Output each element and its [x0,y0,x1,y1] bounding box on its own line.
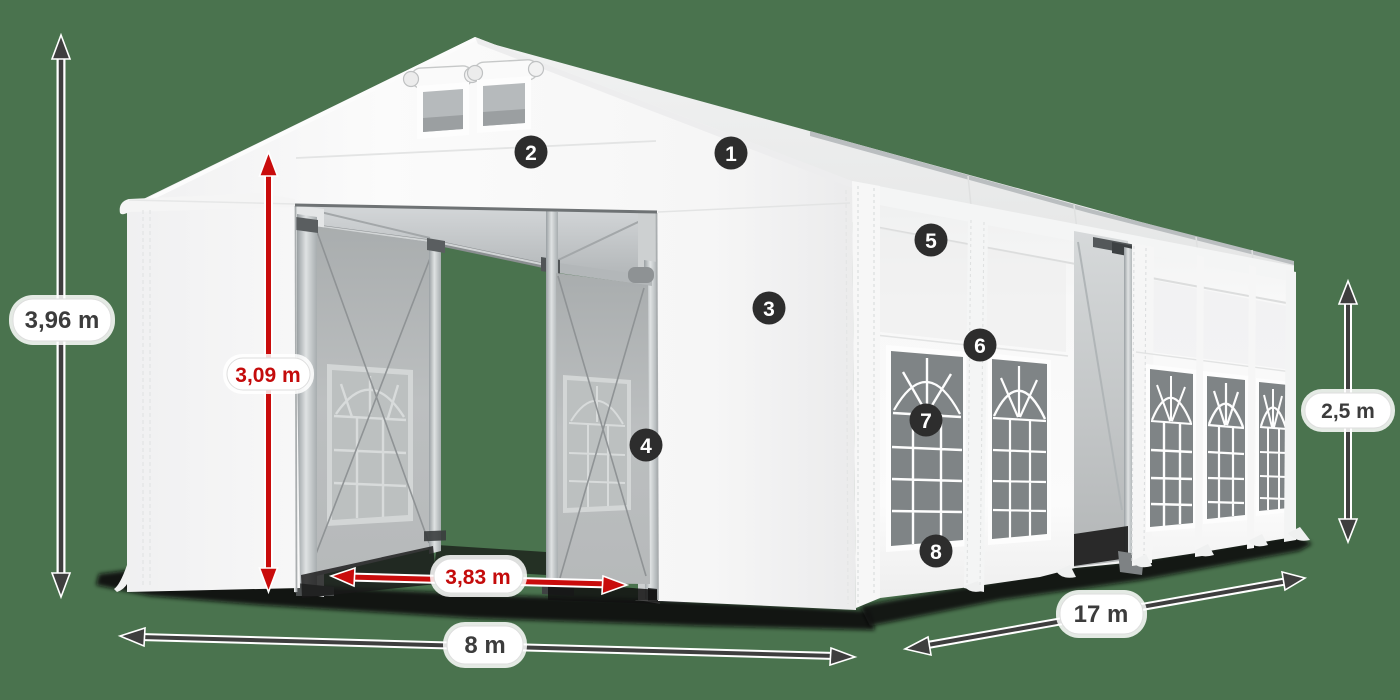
svg-text:2,5 m: 2,5 m [1321,400,1375,423]
svg-text:3,83 m: 3,83 m [445,566,510,589]
svg-text:3: 3 [763,298,775,321]
svg-text:7: 7 [920,410,932,433]
svg-text:3,09 m: 3,09 m [235,364,300,387]
svg-text:1: 1 [725,143,737,166]
svg-text:4: 4 [640,435,652,458]
svg-text:2: 2 [525,142,537,165]
svg-text:17 m: 17 m [1074,601,1129,628]
svg-text:3,96 m: 3,96 m [25,307,100,334]
svg-text:8 m: 8 m [464,632,505,659]
svg-text:6: 6 [974,335,986,358]
svg-text:5: 5 [925,230,937,253]
svg-text:8: 8 [930,541,942,564]
